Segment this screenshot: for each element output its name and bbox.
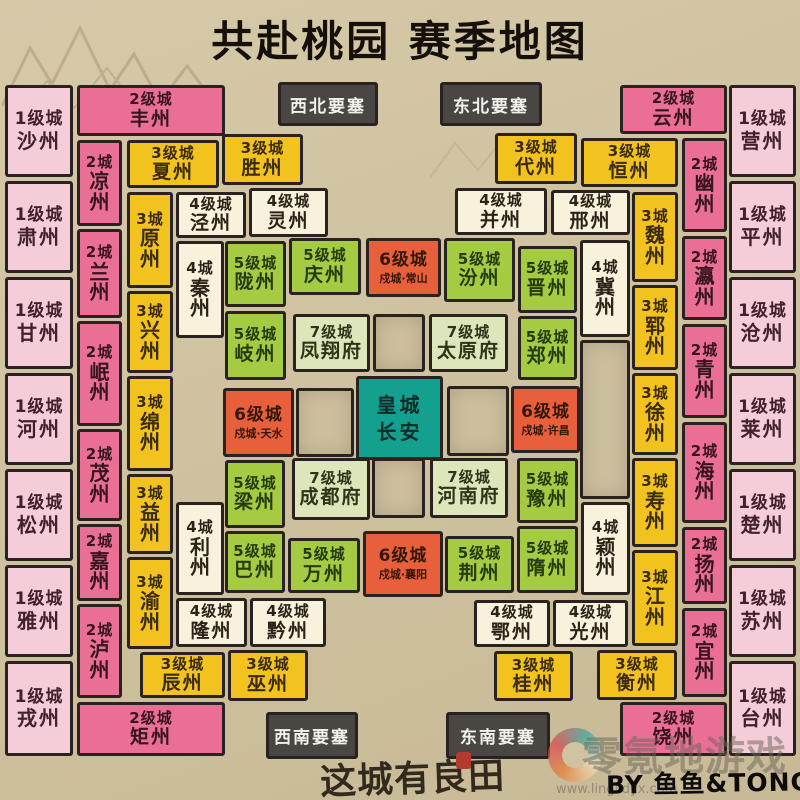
city-chengdufu: 7级城成都府: [292, 458, 370, 520]
city-jiangzhou: 3城江州: [632, 550, 678, 646]
city-lanzhou: 2城兰州: [77, 229, 122, 318]
city-name-label: 渝州: [140, 591, 160, 632]
city-name-label: 戍城·常山: [379, 273, 427, 285]
city-level-label: 5级城: [303, 247, 346, 264]
city-wanzhou: 5级城万州: [288, 538, 360, 593]
city-luzhou: 2城泸州: [77, 604, 122, 698]
city-name-label: 幽州: [695, 173, 715, 214]
city-name-label: 兰州: [90, 262, 110, 303]
city-liangzhou: 5级城梁州: [225, 460, 285, 528]
city-yingzhou-ying3: 4城颖州: [581, 502, 630, 595]
city-level-label: 1级城: [15, 302, 64, 322]
city-level-label: 4级城: [266, 603, 309, 620]
city-level-label: 2城: [86, 244, 113, 261]
city-yizhou-yi2: 2城宜州: [682, 608, 727, 697]
city-name-label: 岐州: [234, 345, 276, 365]
city-level-label: 3级城: [246, 656, 289, 673]
empty-terrain-cell-3: [372, 458, 425, 518]
city-name-label: 晋州: [526, 279, 568, 299]
city-name-label: 松州: [17, 515, 61, 536]
city-shucheng-xuchang: 6级城戍城·许昌: [511, 386, 580, 453]
city-fengzhou: 2级城丰州: [77, 85, 225, 136]
city-qingzhou: 2城青州: [682, 324, 727, 418]
city-shengzhou: 3级城胜州: [222, 134, 303, 185]
city-bingzhou: 4级城并州: [455, 188, 547, 235]
city-fengxiangfu: 7级城凤翔府: [293, 314, 370, 372]
city-yuzhou-yu2: 3城渝州: [127, 557, 173, 649]
city-guizhou: 3级城桂州: [494, 651, 573, 701]
city-level-label: 1级城: [738, 688, 787, 708]
city-daizhou: 3级城代州: [495, 133, 577, 184]
logo-seal-icon: [456, 752, 471, 769]
city-name-label: 戎州: [17, 708, 61, 729]
city-name-label: 成都府: [299, 488, 362, 508]
city-name-label: 光州: [569, 623, 611, 643]
city-wuzhou: 3级城巫州: [228, 650, 308, 701]
city-level-label: 4城: [592, 519, 619, 536]
fortress-label: 东北要塞: [453, 92, 529, 117]
city-name-label: 魏州: [645, 225, 665, 266]
author-byline: BY 鱼鱼&TONG: [606, 762, 800, 800]
city-ezhou: 4级城鄂州: [474, 600, 550, 647]
city-level-label: 3级城: [512, 657, 555, 674]
city-level-label: 4级城: [479, 192, 522, 209]
city-qinzhou: 4城秦州: [176, 241, 224, 338]
city-qianzhou: 4级城黔州: [250, 598, 326, 647]
city-yuanzhou: 3城原州: [127, 192, 173, 288]
city-name-label: 矩州: [130, 728, 172, 748]
city-name-label: 邢州: [569, 212, 611, 232]
city-level-label: 5级城: [233, 475, 276, 492]
city-youzhou: 2城幽州: [682, 138, 727, 232]
city-level-label: 3级城: [161, 656, 204, 673]
fortress-northeast: 东北要塞: [440, 82, 542, 126]
fortress-label: 西北要塞: [290, 92, 366, 117]
city-level-label: 2城: [691, 623, 718, 640]
city-name-label: 平州: [741, 227, 785, 248]
city-ganzhou: 1级城甘州: [5, 277, 73, 369]
city-suizhou: 5级城隋州: [517, 526, 578, 593]
city-name-label: 隆州: [190, 622, 232, 642]
city-name-label: 隋州: [526, 559, 568, 579]
city-level-label: 2城: [691, 536, 718, 553]
city-name-label: 夏州: [152, 163, 194, 183]
city-name-label: 冀州: [595, 277, 615, 318]
city-name-label: 戍城·襄阳: [379, 569, 427, 581]
city-name-label: 苏州: [741, 611, 785, 632]
city-name-label: 代州: [515, 158, 557, 178]
city-songzhou: 1级城松州: [5, 469, 73, 561]
city-name-label: 凤翔府: [300, 342, 363, 362]
city-name-label: 泾州: [190, 214, 232, 234]
city-name-label: 绵州: [140, 412, 160, 453]
city-jingzhou-jing1: 4级城泾州: [176, 192, 246, 238]
city-shouzhou: 3城寿州: [632, 458, 678, 547]
city-name-label: 秦州: [190, 278, 210, 319]
city-laizhou: 1级城莱州: [729, 373, 796, 465]
city-jingzhou: 5级城荆州: [445, 536, 514, 593]
city-xingzhou-xing1: 3城兴州: [127, 291, 173, 373]
city-name-label: 万州: [303, 565, 345, 585]
city-level-label: 6级城: [379, 251, 428, 271]
map-grid: 西北要塞东北要塞西南要塞东南要塞1级城沙州1级城肃州1级城甘州1级城河州1级城松…: [0, 0, 800, 800]
city-shucheng-tianshui: 6级城戍城·天水: [223, 388, 294, 457]
city-level-label: 5级城: [526, 329, 569, 346]
city-name-label: 甘州: [17, 323, 61, 344]
city-name-label: 肃州: [17, 227, 61, 248]
city-pingzhou: 1级城平州: [729, 181, 796, 273]
city-level-label: 4级城: [569, 604, 612, 621]
empty-terrain-cell-2: [447, 386, 509, 456]
city-zhengzhou: 5级城郑州: [518, 316, 577, 380]
city-name-label: 戍城·天水: [234, 428, 282, 440]
city-level-label: 5级城: [233, 543, 276, 560]
city-level-label: 4级城: [189, 196, 232, 213]
city-bazhou: 5级城巴州: [225, 531, 285, 593]
city-name-label: 戍城·许昌: [521, 425, 569, 437]
city-name-label: 岷州: [90, 362, 110, 403]
city-level-label: 皇城: [377, 394, 423, 417]
city-level-label: 1级城: [738, 494, 787, 514]
city-name-label: 郑州: [526, 347, 568, 367]
city-name-label: 长安: [377, 422, 423, 443]
city-name-label: 陇州: [234, 273, 276, 293]
city-shazhou: 1级城沙州: [5, 85, 73, 177]
city-level-label: 2城: [691, 443, 718, 460]
city-name-label: 利州: [190, 537, 210, 578]
city-level-label: 1级城: [738, 110, 787, 130]
city-level-label: 6级城: [379, 547, 428, 567]
city-name-label: 桂州: [512, 675, 554, 695]
city-name-label: 瀛州: [695, 266, 715, 307]
season-map: 共赴桃园 赛季地图 西北要塞东北要塞西南要塞东南要塞1级城沙州1级城肃州1级城甘…: [0, 0, 800, 800]
city-name-label: 云州: [652, 109, 694, 129]
city-yingzhou-ying2: 2城瀛州: [682, 236, 727, 320]
city-level-label: 2城: [86, 344, 113, 361]
city-level-label: 1级城: [15, 206, 64, 226]
city-qizhou: 5级城岐州: [225, 311, 286, 380]
city-name-label: 丰州: [130, 110, 172, 130]
city-level-label: 4城: [186, 519, 213, 536]
city-name-label: 鄂州: [491, 623, 533, 643]
city-hengzhou-heng2: 3级城恒州: [581, 138, 678, 187]
city-taiyuanfu: 7级城太原府: [429, 314, 508, 372]
city-level-label: 3城: [641, 473, 668, 490]
city-level-label: 4级城: [267, 193, 310, 210]
city-level-label: 3级城: [608, 143, 651, 160]
city-level-label: 4级城: [490, 604, 533, 621]
city-name-label: 兴州: [140, 320, 160, 361]
city-juzhou: 2级城矩州: [77, 702, 225, 756]
city-name-label: 河南府: [437, 487, 500, 507]
city-name-label: 雅州: [17, 611, 61, 632]
city-level-label: 3级城: [151, 145, 194, 162]
city-name-label: 海州: [695, 461, 715, 502]
city-level-label: 4级城: [569, 193, 612, 210]
city-chuzhou: 1级城楚州: [729, 469, 796, 561]
city-level-label: 5级城: [458, 251, 501, 268]
city-name-label: 青州: [695, 359, 715, 400]
city-shucheng-xiangyang: 6级城戍城·襄阳: [363, 531, 443, 597]
city-name-label: 沧州: [741, 323, 785, 344]
city-name-label: 恒州: [608, 162, 650, 182]
city-name-label: 汾州: [458, 269, 500, 289]
city-haizhou: 2城海州: [682, 422, 727, 523]
city-name-label: 梁州: [234, 493, 276, 513]
city-level-label: 7级城: [447, 324, 490, 341]
city-name-label: 徐州: [645, 402, 665, 443]
city-name-label: 茂州: [90, 463, 110, 504]
city-name-label: 营州: [741, 131, 785, 152]
city-name-label: 豫州: [526, 490, 568, 510]
city-huangcheng-changan: 皇城长安: [356, 376, 443, 460]
city-level-label: 4级城: [190, 603, 233, 620]
city-name-label: 寿州: [645, 491, 665, 532]
city-level-label: 3级城: [241, 140, 284, 157]
city-level-label: 7级城: [310, 324, 353, 341]
city-name-label: 原州: [140, 228, 160, 269]
city-level-label: 1级城: [738, 590, 787, 610]
city-level-label: 5级城: [458, 545, 501, 562]
city-level-label: 1级城: [15, 688, 64, 708]
city-weizhou: 3城魏州: [632, 192, 678, 282]
city-level-label: 1级城: [738, 206, 787, 226]
city-name-label: 嘉州: [90, 551, 110, 592]
city-chenzhou: 3级城辰州: [140, 652, 225, 698]
city-maozhou: 2城茂州: [77, 429, 122, 521]
city-level-label: 7级城: [309, 470, 352, 487]
city-hezhou: 1级城河州: [5, 373, 73, 465]
city-name-label: 宜州: [695, 641, 715, 682]
city-level-label: 1级城: [15, 590, 64, 610]
city-name-label: 衡州: [616, 674, 658, 694]
city-name-label: 楚州: [741, 515, 785, 536]
city-name-label: 并州: [480, 211, 522, 231]
city-fenzhou: 5级城汾州: [444, 238, 515, 302]
city-name-label: 黔州: [267, 622, 309, 642]
city-guangzhou-guang1: 4级城光州: [553, 600, 628, 647]
city-jinzhou: 5级城晋州: [518, 246, 577, 313]
city-level-label: 1级城: [738, 302, 787, 322]
city-level-label: 7级城: [447, 469, 490, 486]
fortress-label: 东南要塞: [460, 723, 536, 748]
city-name-label: 郓州: [645, 316, 665, 357]
city-level-label: 2级城: [129, 91, 172, 108]
city-yunzhou: 2级城云州: [620, 85, 727, 134]
city-level-label: 5级城: [526, 260, 569, 277]
city-xiazhou: 3级城夏州: [127, 140, 219, 188]
city-level-label: 2级城: [129, 710, 172, 727]
city-name-label: 泸州: [90, 639, 110, 680]
fortress-northwest: 西北要塞: [278, 82, 378, 126]
city-level-label: 1级城: [15, 398, 64, 418]
city-level-label: 4城: [591, 259, 618, 276]
city-level-label: 3城: [136, 394, 163, 411]
city-name-label: 灵州: [267, 212, 309, 232]
city-level-label: 6级城: [234, 406, 283, 426]
city-level-label: 3城: [641, 298, 668, 315]
city-yazhou: 1级城雅州: [5, 565, 73, 657]
city-level-label: 2城: [86, 533, 113, 550]
city-level-label: 5级城: [234, 326, 277, 343]
city-liangzhou-cool: 2城凉州: [77, 140, 122, 226]
city-jizhou: 4城冀州: [580, 240, 630, 337]
empty-terrain-cell-1: [296, 388, 354, 457]
city-longzhou-long3: 5级城陇州: [225, 241, 286, 307]
city-yuzhou: 5级城豫州: [517, 458, 578, 523]
city-yangzhou: 2城扬州: [682, 527, 727, 604]
city-name-label: 莱州: [741, 419, 785, 440]
empty-terrain-cell-4: [580, 340, 630, 499]
city-lizhou: 4城利州: [176, 502, 224, 595]
city-name-label: 凉州: [90, 171, 110, 212]
city-level-label: 4城: [186, 260, 213, 277]
city-name-label: 辰州: [161, 674, 203, 694]
city-name-label: 江州: [645, 586, 665, 627]
city-minzhou: 2城岷州: [77, 321, 122, 426]
city-level-label: 5级城: [302, 546, 345, 563]
city-name-label: 巴州: [234, 561, 276, 581]
city-name-label: 沙州: [17, 131, 61, 152]
city-cangzhou: 1级城沧州: [729, 277, 796, 369]
city-name-label: 益州: [140, 502, 160, 543]
city-level-label: 1级城: [15, 494, 64, 514]
city-xuzhou: 3城徐州: [632, 373, 678, 455]
city-level-label: 2级城: [652, 90, 695, 107]
city-name-label: 河州: [17, 419, 61, 440]
city-level-label: 6级城: [521, 403, 570, 423]
city-name-label: 巫州: [247, 675, 289, 695]
city-shucheng-changshan: 6级城戍城·常山: [366, 238, 441, 297]
city-suzhou: 1级城苏州: [729, 565, 796, 657]
city-name-label: 颖州: [596, 537, 616, 578]
city-yingzhou: 1级城营州: [729, 85, 796, 177]
city-jiazhou: 2城嘉州: [77, 524, 122, 601]
city-name-label: 扬州: [695, 554, 715, 595]
city-mianzhou: 3城绵州: [127, 376, 173, 471]
city-lingzhou: 4级城灵州: [249, 188, 328, 237]
city-level-label: 5级城: [526, 471, 569, 488]
fortress-label: 西南要塞: [274, 723, 350, 748]
city-level-label: 1级城: [738, 398, 787, 418]
city-suzhou-su4: 1级城肃州: [5, 181, 73, 273]
city-level-label: 5级城: [526, 540, 569, 557]
city-yizhou: 3城益州: [127, 474, 173, 554]
empty-terrain-cell-0: [373, 314, 425, 372]
city-level-label: 3级城: [615, 656, 658, 673]
city-henanfu: 7级城河南府: [430, 458, 508, 518]
city-level-label: 1级城: [15, 110, 64, 130]
city-qingzhou-qing4: 5级城庆州: [289, 238, 361, 295]
city-level-label: 3级城: [514, 139, 557, 156]
city-yunzhou-yun4: 3城郓州: [632, 285, 678, 370]
city-level-label: 5级城: [234, 255, 277, 272]
city-name-label: 庆州: [304, 266, 346, 286]
city-name-label: 胜州: [241, 159, 283, 179]
city-xingzhou-xing2: 4级城邢州: [551, 190, 630, 235]
city-rongzhou: 1级城戎州: [5, 661, 73, 756]
city-name-label: 荆州: [458, 564, 500, 584]
game-logo: 这城有良田: [319, 747, 506, 800]
city-name-label: 太原府: [437, 342, 500, 362]
city-hengzhou: 3级城衡州: [597, 650, 677, 700]
city-longzhou: 4级城隆州: [176, 598, 247, 647]
